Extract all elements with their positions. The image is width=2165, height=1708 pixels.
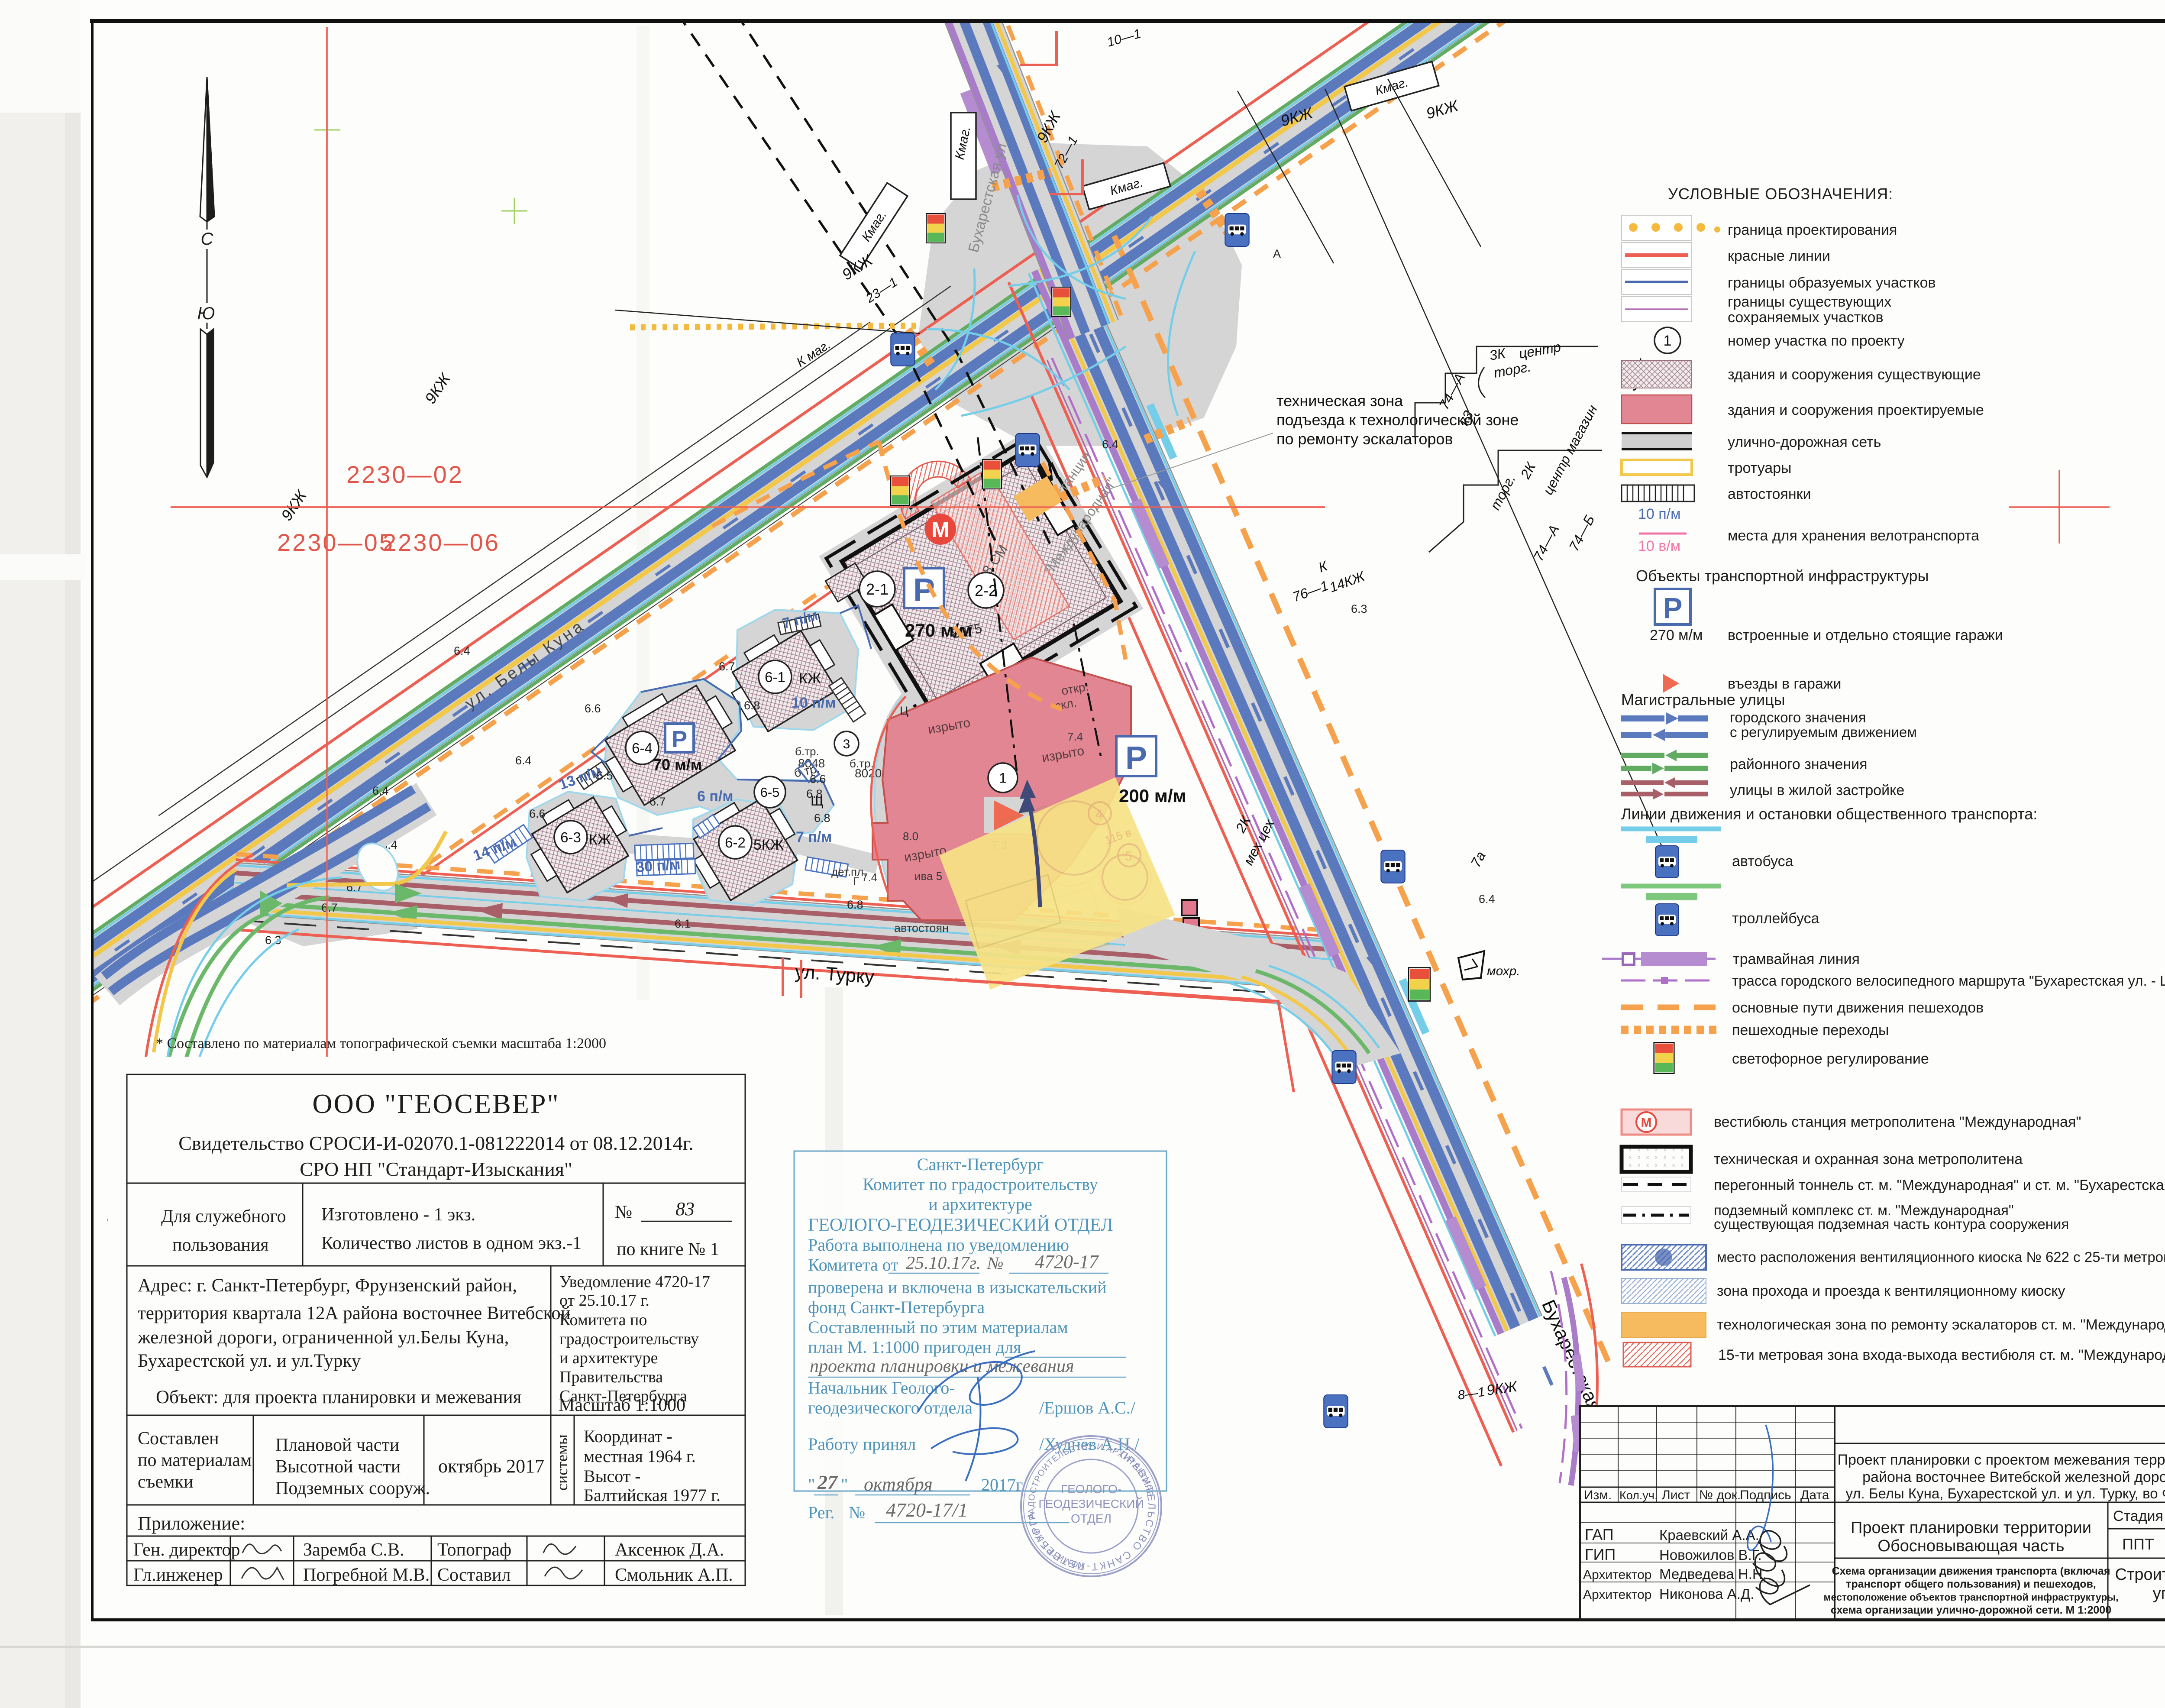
svg-text:6-3: 6-3 [560, 829, 581, 845]
svg-text:Рег.: Рег. [808, 1503, 834, 1522]
svg-text:б.тр.: б.тр. [795, 745, 819, 758]
svg-text:проверена и включена в изыскат: проверена и включена в изыскательский [808, 1278, 1107, 1297]
svg-text:Для служебного: Для служебного [161, 1207, 286, 1226]
svg-text:СРО НП "Стандарт-Изыскания": СРО НП "Стандарт-Изыскания" [300, 1158, 572, 1180]
svg-text:M: M [1641, 1116, 1652, 1130]
svg-text:2230—02: 2230—02 [346, 461, 464, 488]
svg-text:6.4: 6.4 [1479, 893, 1495, 906]
svg-text:съемки: съемки [138, 1472, 193, 1492]
svg-text:": " [808, 1475, 815, 1494]
svg-text:вестибюль станция метрополитен: вестибюль станция метрополитена "Междуна… [1714, 1114, 2081, 1130]
svg-text:Погребной М.В.: Погребной М.В. [303, 1565, 430, 1585]
svg-text:2230—06: 2230—06 [383, 529, 500, 556]
svg-text:трасса городского велосипедног: трасса городского велосипедного маршрута… [1732, 973, 2165, 989]
svg-text:въезды в гаражи: въезды в гаражи [1728, 676, 1842, 692]
svg-text:светофорное регулирование: светофорное регулирование [1732, 1051, 1929, 1067]
svg-text:6.1: 6.1 [675, 917, 691, 930]
svg-text:": " [841, 1475, 848, 1494]
svg-text:Схема организации движения тра: Схема организации движения транспорта (в… [1832, 1565, 2110, 1577]
svg-text:№ док.: № док. [1699, 1488, 1741, 1502]
svg-text:6.4: 6.4 [515, 754, 532, 767]
svg-text:дет.пл.: дет.пл. [831, 865, 867, 878]
svg-text:P: P [672, 726, 687, 752]
svg-text:перегонный тоннель ст. м. "Меж: перегонный тоннель ст. м. "Международная… [1714, 1177, 2165, 1194]
svg-text:Количество листов в одном экз.: Количество листов в одном экз.-1 [321, 1233, 582, 1253]
svg-text:места для хранения велотранспо: места для хранения велотранспорта [1728, 527, 1979, 544]
svg-text:троллейбуса: троллейбуса [1732, 910, 1819, 927]
svg-text:Санкт-Петербург: Санкт-Петербург [917, 1155, 1044, 1174]
svg-text:25.10.17г.: 25.10.17г. [906, 1253, 981, 1273]
svg-text:83: 83 [675, 1198, 695, 1220]
svg-text:Составленный по этим материала: Составленный по этим материалам [808, 1317, 1068, 1337]
svg-text:местоположение объектов трансп: местоположение объектов транспортной инф… [1823, 1592, 2118, 1603]
svg-text:ОТДЕЛ: ОТДЕЛ [1071, 1512, 1112, 1525]
svg-text:10 в/м: 10 в/м [1638, 538, 1680, 554]
svg-text:Смольник А.П.: Смольник А.П. [615, 1565, 733, 1585]
svg-text:КЖ: КЖ [799, 670, 821, 687]
svg-text:зона прохода и проезда к венти: зона прохода и проезда к вентиляционному… [1717, 1283, 2065, 1299]
svg-text:* Составлено по материалам топ: * Составлено по материалам топографическ… [156, 1035, 606, 1051]
svg-text:пешеходные переходы: пешеходные переходы [1732, 1022, 1889, 1038]
svg-text:местная 1964 г.: местная 1964 г. [584, 1446, 696, 1466]
svg-text:P: P [1125, 739, 1147, 776]
svg-text:Плановой части: Плановой части [275, 1435, 399, 1455]
svg-text:б.тр.: б.тр. [850, 757, 874, 770]
svg-text:план М. 1:1000 пригоден для: план М. 1:1000 пригоден для [808, 1337, 1021, 1357]
svg-text:6.4: 6.4 [1102, 438, 1118, 451]
svg-text:6.5: 6.5 [597, 769, 613, 782]
svg-text:Г: Г [853, 875, 859, 888]
svg-text:1: 1 [1664, 333, 1672, 349]
svg-text:10 п/м: 10 п/м [1638, 506, 1681, 522]
svg-text:районного значения: районного значения [1730, 756, 1868, 773]
svg-text:Линии движения и остановки общ: Линии движения и остановки общественного… [1621, 805, 2037, 823]
svg-text:6.7: 6.7 [321, 901, 338, 914]
svg-text:техническая и охранная зона ме: техническая и охранная зона метрополитен… [1714, 1151, 2023, 1168]
svg-text:4: 4 [1095, 807, 1103, 822]
svg-text:Обосновывающая часть: Обосновывающая часть [1877, 1537, 2064, 1555]
svg-text:проекта планировки и межевания: проекта планировки и межевания [810, 1356, 1074, 1376]
svg-text:Никонова А.Д.: Никонова А.Д. [1659, 1586, 1754, 1602]
svg-text:200 м/м: 200 м/м [1119, 786, 1186, 806]
svg-text:основные пути движения пешеход: основные пути движения пешеходов [1732, 1000, 1984, 1016]
svg-text:Объект: для проекта планировки: Объект: для проекта планировки и межеван… [156, 1387, 521, 1407]
svg-text:6.8: 6.8 [744, 699, 760, 712]
svg-text:5: 5 [1125, 849, 1132, 864]
svg-text:района восточнее Витебской жел: района восточнее Витебской железной доро… [1862, 1469, 2165, 1485]
svg-text:2017г.: 2017г. [981, 1475, 1025, 1494]
svg-text:Уведомление 4720-17: Уведомление 4720-17 [559, 1273, 710, 1291]
svg-text:автостоян: автостоян [894, 922, 949, 935]
svg-text:транспорт общего пользования): транспорт общего пользования) и пешеходо… [1846, 1578, 2096, 1590]
svg-text:5КЖ: 5КЖ [753, 837, 784, 853]
svg-text:7 п/м: 7 п/м [796, 829, 832, 845]
svg-text:Работу принял: Работу принял [808, 1434, 916, 1454]
svg-text:6.8: 6.8 [814, 812, 830, 825]
svg-text:Балтийская 1977 г.: Балтийская 1977 г. [584, 1485, 721, 1505]
svg-text:Проект планировки с проектом м: Проект планировки с проектом межевания т… [1838, 1452, 2165, 1468]
svg-text:УСЛОВНЫЕ ОБОЗНАЧЕНИЯ:: УСЛОВНЫЕ ОБОЗНАЧЕНИЯ: [1668, 185, 1893, 203]
svg-text:территория квартала 12А района: территория квартала 12А района восточнее… [138, 1303, 571, 1323]
svg-text:сохраняемых участков: сохраняемых участков [1728, 309, 1884, 326]
svg-text:Строительно-монтажное: Строительно-монтажное [2115, 1566, 2165, 1584]
svg-text:красные линии: красные линии [1728, 248, 1830, 264]
svg-text:Комитета от: Комитета от [808, 1255, 898, 1275]
svg-text:1: 1 [999, 770, 1007, 786]
svg-text:Подземных сооруж.: Подземных сооруж. [275, 1478, 430, 1498]
svg-text:Подпись: Подпись [1740, 1488, 1791, 1502]
svg-text:градостроительству: градостроительству [559, 1330, 699, 1348]
svg-text:по книге № 1: по книге № 1 [617, 1239, 719, 1259]
svg-text:здания и сооружения существующ: здания и сооружения существующие [1728, 366, 1981, 383]
svg-text:8.0: 8.0 [903, 830, 918, 843]
svg-text:15-ти метровая зона входа-выхо: 15-ти метровая зона входа-выхода вестибю… [1718, 1347, 2165, 1363]
svg-text:встроенные и отдельно стоящие: встроенные и отдельно стоящие гаражи [1728, 627, 2003, 644]
svg-text:6-4: 6-4 [632, 740, 653, 756]
svg-text:4720-17: 4720-17 [1035, 1251, 1099, 1272]
svg-text:схема организации улично-дорож: схема организации улично-дорожной сети. … [1831, 1604, 2111, 1616]
svg-text:и архитектуре: и архитектуре [928, 1194, 1032, 1214]
svg-text:автобуса: автобуса [1732, 853, 1793, 870]
svg-text:ГАП: ГАП [1585, 1526, 1614, 1543]
svg-text:улицы в жилой застройке: улицы в жилой застройке [1730, 782, 1904, 799]
svg-text:граница проектирования: граница проектирования [1728, 222, 1897, 238]
svg-text:Изготовлено - 1 экз.: Изготовлено - 1 экз. [321, 1205, 475, 1225]
svg-text:Архитектор: Архитектор [1583, 1568, 1651, 1582]
svg-text:Магистральные улицы: Магистральные улицы [1621, 691, 1785, 708]
svg-text:6.7: 6.7 [719, 660, 735, 673]
svg-text:Заремба С.В.: Заремба С.В. [303, 1540, 404, 1560]
svg-text:подъезда к технологической зон: подъезда к технологической зоне [1276, 411, 1519, 429]
svg-text:от 25.10.17 г.: от 25.10.17 г. [559, 1291, 649, 1310]
svg-text:Начальник Геолого-: Начальник Геолого- [808, 1378, 955, 1397]
svg-text:геодезического отдела: геодезического отдела [808, 1398, 973, 1417]
svg-text:октября: октября [864, 1474, 933, 1495]
svg-text:октябрь 2017: октябрь 2017 [438, 1456, 544, 1477]
svg-text:границы существующих: границы существующих [1728, 294, 1891, 310]
svg-text:здания и сооружения проектируе: здания и сооружения проектируемые [1728, 402, 1984, 418]
svg-text:M: M [931, 518, 950, 542]
svg-text:Изм.: Изм. [1584, 1488, 1612, 1502]
svg-text:номер участка по проекту: номер участка по проекту [1728, 333, 1905, 349]
svg-text:Координат -: Координат - [584, 1427, 672, 1446]
svg-text:3: 3 [843, 737, 850, 751]
svg-text:улично-дорожная сеть: улично-дорожная сеть [1728, 434, 1881, 450]
svg-text:Комитета по: Комитета по [559, 1311, 647, 1329]
svg-text:железной дороги, ограниченной: железной дороги, ограниченной ул.Белы Ку… [137, 1327, 509, 1348]
svg-text:Работа выполнена по уведомлени: Работа выполнена по уведомлению [808, 1235, 1069, 1255]
svg-text:Проект планировки территории: Проект планировки территории [1851, 1519, 2091, 1537]
svg-text:Стадия: Стадия [2113, 1508, 2163, 1524]
svg-text:автостоянки: автостоянки [1728, 486, 1811, 502]
svg-text:ива 5: ива 5 [914, 870, 942, 883]
svg-text:Аксенюк Д.А.: Аксенюк Д.А. [615, 1540, 724, 1560]
svg-text:Правительства: Правительства [559, 1368, 663, 1386]
svg-text:6-2: 6-2 [725, 835, 746, 851]
svg-text:Объекты транспортной инфрастру: Объекты транспортной инфраструктуры [1636, 567, 1929, 585]
svg-text:Приложение:: Приложение: [138, 1513, 245, 1534]
svg-text:C: C [201, 230, 214, 249]
svg-text:70 м/м: 70 м/м [653, 756, 702, 773]
svg-text:4720-17/1: 4720-17/1 [886, 1499, 968, 1521]
svg-text:границы образуемых участков: границы образуемых участков [1728, 275, 1936, 291]
svg-text:Лист: Лист [1662, 1488, 1690, 1502]
svg-text:№: № [986, 1253, 1004, 1273]
svg-text:6.8: 6.8 [847, 898, 863, 911]
svg-text:P: P [1663, 592, 1683, 624]
svg-text:ГИП: ГИП [1585, 1546, 1616, 1563]
svg-text:ул. Белы Куна, Бухарестской ул: ул. Белы Куна, Бухарестской ул. и ул. Ту… [1845, 1485, 2165, 1501]
svg-text:пользования: пользования [172, 1235, 269, 1255]
svg-text:10 п/м: 10 п/м [792, 695, 836, 711]
svg-text:трамвайная линия: трамвайная линия [1733, 951, 1860, 967]
svg-text:Высот -: Высот - [584, 1466, 641, 1486]
svg-text:технологическая зона по ремонт: технологическая зона по ремонту эскалато… [1717, 1317, 2165, 1333]
svg-text:6 п/м: 6 п/м [697, 788, 734, 805]
svg-text:городского значения: городского значения [1730, 709, 1866, 725]
svg-text:Краевский А.А.: Краевский А.А. [1659, 1527, 1759, 1543]
svg-text:тротуары: тротуары [1728, 460, 1791, 476]
svg-text:мохр.: мохр. [1487, 964, 1520, 978]
svg-text:Составил: Составил [437, 1565, 511, 1585]
svg-text:Составлен: Составлен [138, 1429, 219, 1449]
svg-text:место расположения вентиляцион: место расположения вентиляционного киоск… [1717, 1249, 2165, 1265]
svg-text:№: № [615, 1202, 632, 1222]
svg-text:Масштаб 1:1000: Масштаб 1:1000 [559, 1395, 685, 1415]
svg-text:Ц: Ц [900, 704, 908, 717]
svg-text:30 п/м: 30 п/м [636, 856, 681, 876]
svg-text:Архитектор: Архитектор [1583, 1588, 1651, 1602]
svg-text:по ремонту эскалаторов: по ремонту эскалаторов [1276, 430, 1453, 448]
svg-text:7.4: 7.4 [1067, 730, 1083, 743]
svg-text:6.3: 6.3 [1351, 602, 1367, 615]
svg-text:6.8: 6.8 [806, 787, 823, 800]
svg-text:27: 27 [817, 1471, 838, 1493]
svg-text:6.7: 6.7 [649, 795, 666, 808]
svg-text:фонд Санкт-Петербурга: фонд Санкт-Петербурга [808, 1297, 985, 1317]
svg-text:Кол.уч.: Кол.уч. [1619, 1489, 1658, 1502]
svg-text:6.6: 6.6 [529, 807, 546, 820]
svg-text:ГЕОЛОГО-ГЕОДЕЗИЧЕСКИЙ ОТДЕЛ: ГЕОЛОГО-ГЕОДЕЗИЧЕСКИЙ ОТДЕЛ [808, 1215, 1113, 1235]
svg-text:Гл.инженер: Гл.инженер [133, 1565, 223, 1585]
svg-text:с регулируемым движением: с регулируемым движением [1730, 724, 1917, 740]
svg-text:/Ершов А.С./: /Ершов А.С./ [1039, 1398, 1136, 1417]
svg-text:Свидетельство СРОСИ-И-02070.1-: Свидетельство СРОСИ-И-02070.1-081222014 … [178, 1132, 694, 1154]
svg-text:техническая зона: техническая зона [1276, 392, 1403, 410]
svg-text:ППТ: ППТ [2122, 1535, 2154, 1553]
svg-text:270 м/м: 270 м/м [1650, 627, 1703, 644]
svg-text:КЖ: КЖ [589, 831, 611, 848]
svg-text:Ген. директор: Ген. директор [133, 1540, 240, 1560]
svg-text:существующая подземная часть к: существующая подземная часть контура соо… [1714, 1216, 2069, 1232]
svg-text:по материалам: по материалам [138, 1450, 252, 1470]
svg-text:системы: системы [553, 1434, 571, 1491]
svg-text:Новожилов В.Г.: Новожилов В.Г. [1659, 1547, 1762, 1563]
svg-text:6.6: 6.6 [585, 702, 601, 715]
svg-text:ООО "ГЕОСЕВЕР": ООО "ГЕОСЕВЕР" [312, 1088, 559, 1119]
svg-text:2230—05: 2230—05 [277, 529, 394, 556]
svg-text:Медведева Н.Н.: Медведева Н.Н. [1659, 1566, 1767, 1582]
svg-text:Бухарестской ул. и ул.Турку: Бухарестской ул. и ул.Турку [138, 1351, 361, 1371]
svg-text:6-5: 6-5 [760, 785, 780, 800]
svg-text:А: А [1273, 247, 1281, 260]
svg-text:№: № [849, 1503, 865, 1522]
svg-text:ГЕОЛОГО-: ГЕОЛОГО- [1061, 1482, 1121, 1496]
svg-text:Топограф: Топограф [437, 1540, 511, 1560]
svg-text:Дата: Дата [1800, 1488, 1829, 1502]
svg-text:Комитет по градостроительству: Комитет по градостроительству [863, 1174, 1098, 1194]
svg-text:и архитектуре: и архитектуре [559, 1349, 658, 1367]
svg-text:6.4: 6.4 [372, 784, 389, 797]
svg-text:6.6: 6.6 [810, 773, 826, 786]
svg-text:Адрес: г. Санкт-Петербург, Фру: Адрес: г. Санкт-Петербург, Фрунзенский р… [138, 1275, 517, 1296]
svg-text:Высотной части: Высотной части [275, 1457, 401, 1477]
svg-text:6.4: 6.4 [454, 644, 470, 657]
svg-text:6-1: 6-1 [765, 669, 785, 685]
svg-text:2-2: 2-2 [975, 582, 997, 599]
svg-text:2-1: 2-1 [866, 580, 889, 598]
svg-text:ГЕОДЕЗИЧЕСКИЙ: ГЕОДЕЗИЧЕСКИЙ [1038, 1497, 1144, 1511]
svg-text:управление-19: управление-19 [2153, 1585, 2165, 1603]
svg-text:Ю: Ю [197, 304, 215, 323]
